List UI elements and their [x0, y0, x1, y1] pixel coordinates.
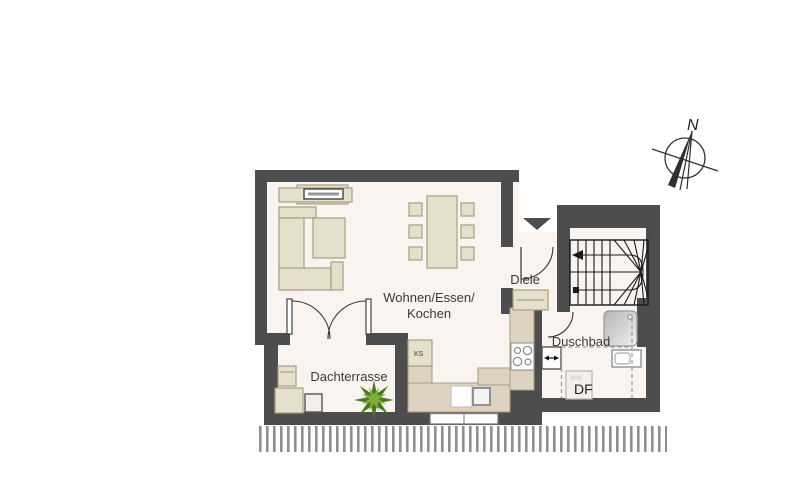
- floor-plan: KS WM DF: [0, 0, 800, 500]
- entrance-arrow-icon: [523, 218, 551, 230]
- kitchen-sink: [451, 386, 490, 407]
- tv-sideboard: [279, 185, 352, 204]
- terrace-lounger: [275, 388, 303, 413]
- compass-north-label: N: [687, 117, 699, 134]
- dining-set: [409, 196, 474, 268]
- hall-label: Diele: [510, 272, 540, 287]
- terrace-table: [305, 394, 322, 412]
- fridge: KS: [408, 340, 432, 366]
- living-room-label-line1: Wohnen/Essen/: [383, 290, 475, 305]
- coffee-table: [313, 218, 345, 258]
- living-room-label-line2: Kochen: [407, 306, 451, 321]
- stair-start-dot: [573, 287, 579, 293]
- terrace-label: Dachterrasse: [310, 369, 387, 384]
- toilet: [612, 350, 641, 367]
- terrace-chair: [278, 366, 296, 386]
- washbasin: [542, 347, 561, 369]
- terrace-edge-hatching: [258, 426, 667, 452]
- compass: N: [652, 117, 718, 190]
- kitchen-window: [430, 414, 498, 425]
- floor-plan-drawing: KS WM DF: [0, 0, 800, 500]
- compass-circle: [665, 138, 705, 178]
- fridge-label: KS: [414, 351, 424, 358]
- bath-label: Duschbad: [552, 334, 611, 349]
- roof-window-label: DF: [574, 381, 593, 397]
- stove: [511, 343, 534, 370]
- hall-sideboard: [513, 290, 548, 310]
- plant: [354, 380, 394, 420]
